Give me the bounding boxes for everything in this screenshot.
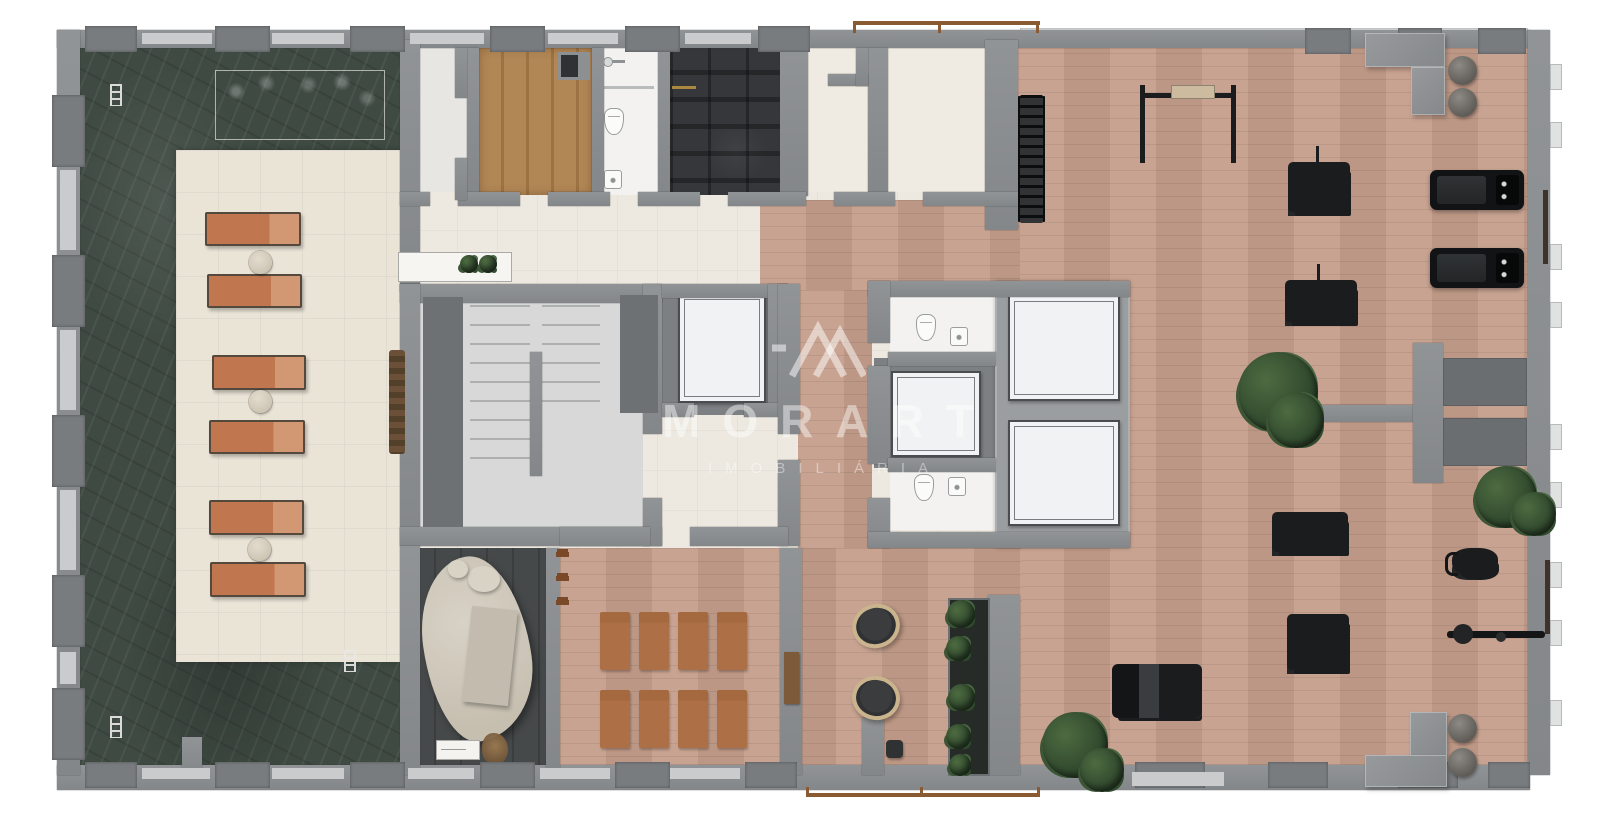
green-plant-wall xyxy=(948,598,990,776)
facade-pier xyxy=(1550,64,1562,90)
corridor-floor-center xyxy=(798,290,872,560)
railing-post xyxy=(1037,787,1040,797)
floor-plan: MORART IMOBILIÁRIA xyxy=(0,0,1600,832)
pool-deck xyxy=(176,150,410,662)
changing-room-b xyxy=(888,48,985,192)
balcony-railing-bottom xyxy=(806,793,1040,797)
pool-jet-zone xyxy=(215,70,385,140)
stair-flight-right xyxy=(542,305,600,419)
sink xyxy=(948,477,966,496)
railing-post xyxy=(853,21,856,33)
wc-bottom xyxy=(890,472,996,530)
facade-pier xyxy=(1550,244,1562,270)
facade-pier xyxy=(1550,562,1562,588)
facade-pier xyxy=(1550,302,1562,328)
stool xyxy=(886,740,903,758)
elevator-1 xyxy=(678,293,766,403)
elevator-2 xyxy=(891,371,981,457)
shower-arm xyxy=(612,60,625,63)
towel-bar xyxy=(672,86,696,89)
wall-bar xyxy=(1543,190,1548,264)
sauna-stove xyxy=(558,52,590,80)
facade-pier xyxy=(1550,424,1562,450)
railing-post xyxy=(1036,21,1039,33)
facade-pier xyxy=(1550,122,1562,148)
bathroom-shelf xyxy=(604,86,654,89)
yoga-door xyxy=(784,652,799,704)
elevator-4 xyxy=(1008,420,1120,526)
corridor-floor-top xyxy=(760,200,1020,292)
changing-room-a xyxy=(808,48,868,192)
pillow xyxy=(468,566,500,592)
wall-right xyxy=(1528,30,1550,775)
wall-bar xyxy=(1545,560,1550,634)
sink xyxy=(950,327,968,346)
railing-post xyxy=(806,787,809,797)
wc-top xyxy=(890,297,996,352)
sink xyxy=(604,170,622,189)
elevator-3 xyxy=(1008,295,1120,401)
steam-room xyxy=(670,48,780,195)
firewood-rack xyxy=(389,350,405,454)
console-table xyxy=(398,252,512,282)
dried-plant xyxy=(482,733,508,765)
facade-pier xyxy=(1550,482,1562,508)
window-strip xyxy=(1020,28,1528,36)
side-table xyxy=(436,740,480,760)
balcony-railing-top xyxy=(855,21,1040,25)
railing-post xyxy=(938,21,941,33)
stair-flight-left xyxy=(470,305,530,473)
railing-post xyxy=(920,787,923,797)
pillow xyxy=(448,560,468,578)
facade-pier xyxy=(1550,700,1562,726)
stair-divider xyxy=(530,352,542,476)
shower-room xyxy=(420,48,467,192)
facade-pier xyxy=(1550,620,1562,646)
